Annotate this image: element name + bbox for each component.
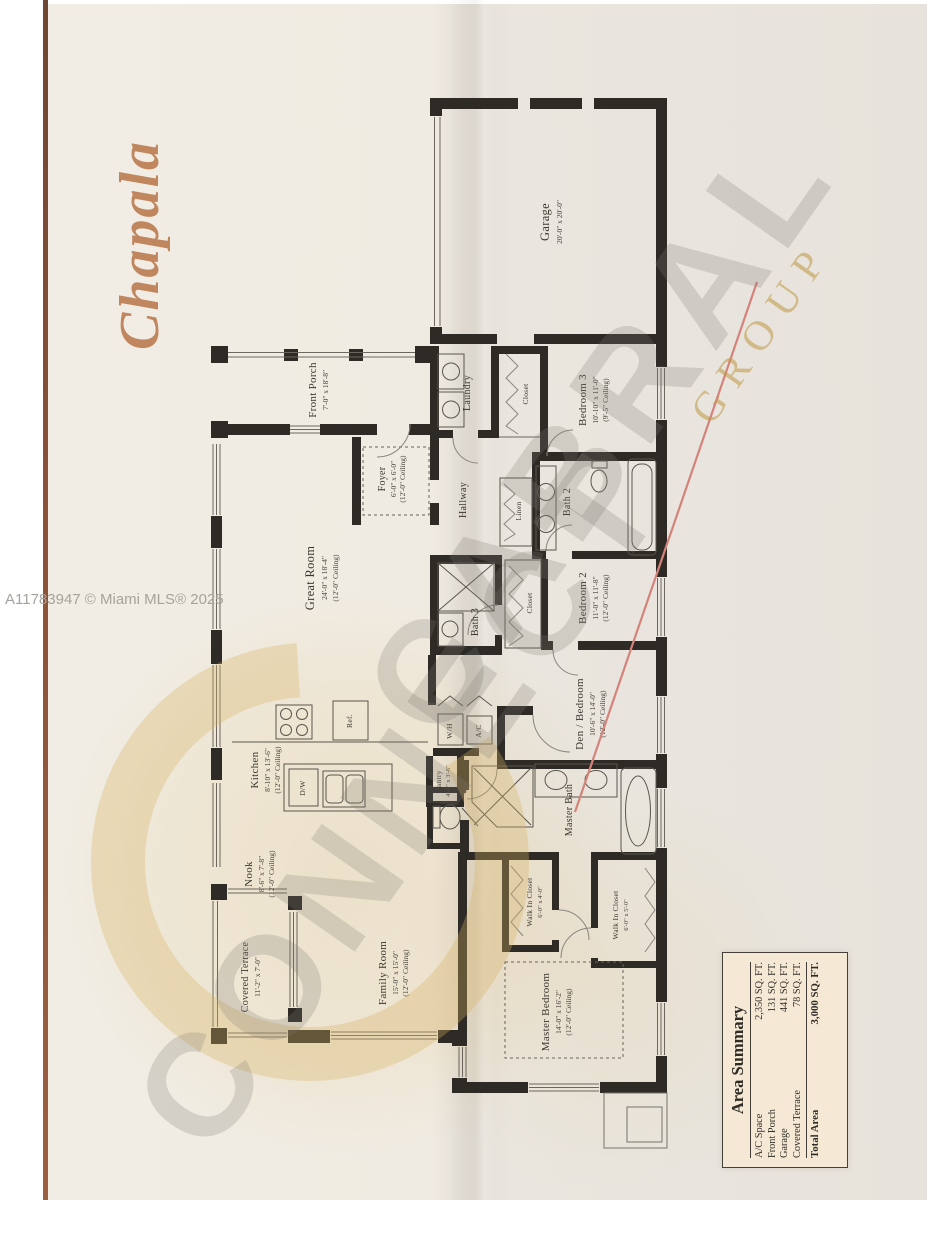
room-dims: 11'-0" x 11'-8" bbox=[591, 576, 600, 619]
room-label-garage: Garage 20'-0" x 20'-0" bbox=[538, 200, 564, 244]
room-name: Nook bbox=[243, 861, 255, 887]
room-name: Bedroom 2 bbox=[577, 572, 589, 624]
room-name: Covered Terrace bbox=[240, 941, 251, 1012]
area-summary-label: Garage bbox=[779, 1128, 792, 1158]
room-name: Family Room bbox=[377, 941, 389, 1005]
fixture-label-dishwasher: D/W bbox=[298, 780, 307, 796]
room-dims: 6'-0" x 5'-0" bbox=[623, 899, 630, 931]
room-ceiling: (12'-0" Ceiling) bbox=[267, 850, 276, 898]
area-summary-value: 441 SQ. FT. bbox=[779, 962, 792, 1012]
room-name: Laundry bbox=[462, 375, 473, 411]
room-label-laundry: Laundry bbox=[462, 375, 473, 411]
room-ceiling: (12'-0" Ceiling) bbox=[564, 988, 573, 1036]
room-dims: 4'-0" x 3'-6" bbox=[445, 765, 452, 797]
room-dims: 8'-10" x 13'-6" bbox=[263, 748, 272, 792]
room-label-walk-in-closet-1: Walk In Closet 6'-0" x 4'-0" bbox=[525, 877, 544, 927]
room-label-hallway: Hallway bbox=[458, 482, 469, 518]
area-summary-row: A/C Space 2,350 SQ. FT. bbox=[754, 962, 767, 1158]
room-label-great-room: Great Room 24'-0" x 18'-4" (12'-0" Ceili… bbox=[303, 546, 340, 610]
room-label-nook: Nook 8'-6" x 7'-8" (12'-0" Ceiling) bbox=[243, 850, 276, 898]
room-name: Master Bath bbox=[564, 784, 575, 836]
room-label-bath-2: Bath 2 bbox=[562, 488, 573, 516]
scanned-floorplan-page: { "plan": { "model_name": "Chapala" }, "… bbox=[0, 0, 927, 1200]
svg-text:D/W: D/W bbox=[298, 780, 307, 796]
room-ceiling: (12'-0" Ceiling) bbox=[401, 949, 410, 997]
room-ceiling: (12'-0" Ceiling) bbox=[601, 574, 610, 622]
room-name: Bath 3 bbox=[470, 608, 481, 636]
room-name: Bath 2 bbox=[562, 488, 573, 516]
area-summary-title: Area Summary bbox=[728, 962, 751, 1158]
room-label-linen: Linen bbox=[514, 502, 523, 521]
room-name: Kitchen bbox=[249, 751, 261, 788]
room-dims: 11'-2" x 7'-0" bbox=[253, 957, 262, 997]
room-label-front-porch: Front Porch 7'-0" x 18'-8" bbox=[307, 362, 330, 418]
room-name: Hallway bbox=[458, 482, 469, 518]
room-label-walk-in-closet-2: Walk In Closet 6'-0" x 5'-0" bbox=[611, 890, 630, 940]
room-label-closet-3: Closet bbox=[521, 383, 530, 405]
room-name: Master Bedroom bbox=[540, 973, 552, 1052]
fixture-label-ac-unit: A/C bbox=[474, 724, 483, 737]
room-name: Linen bbox=[514, 502, 523, 521]
room-dims: 6'-0" x 6'-0" bbox=[389, 461, 398, 497]
room-dims: 8'-6" x 7'-8" bbox=[257, 856, 266, 892]
room-dims: 6'-0" x 4'-0" bbox=[537, 886, 544, 918]
svg-text:A/C: A/C bbox=[474, 724, 483, 737]
room-label-covered-terrace: Covered Terrace 11'-2" x 7'-0" bbox=[240, 941, 262, 1012]
area-summary-value: 2,350 SQ. FT. bbox=[754, 962, 767, 1020]
room-dims: 10'-6" x 14'-0" bbox=[588, 692, 597, 736]
room-ceiling: (12'-0" Ceiling) bbox=[398, 455, 407, 503]
area-summary-total-label: Total Area bbox=[809, 1110, 821, 1158]
room-label-closet-2: Closet bbox=[525, 592, 534, 614]
room-label-family-room: Family Room 15'-0" x 15'-0" (12'-0" Ceil… bbox=[377, 941, 410, 1005]
room-label-foyer: Foyer 6'-0" x 6'-0" (12'-0" Ceiling) bbox=[377, 455, 407, 503]
room-label-bedroom-2: Bedroom 2 11'-0" x 11'-8" (12'-0" Ceilin… bbox=[577, 572, 610, 624]
room-dims: 15'-0" x 15'-0" bbox=[391, 951, 400, 995]
room-name: Pantry bbox=[434, 770, 443, 791]
area-summary-row: Front Porch 131 SQ. FT. bbox=[767, 962, 780, 1158]
room-label-kitchen: Kitchen 8'-10" x 13'-6" (12'-0" Ceiling) bbox=[249, 746, 282, 794]
room-label-master-bath: Master Bath bbox=[564, 784, 575, 836]
area-summary-total-row: Total Area 3,000 SQ. FT. bbox=[806, 962, 821, 1158]
area-summary-total-value: 3,000 SQ. FT. bbox=[809, 962, 821, 1025]
area-summary-label: Front Porch bbox=[767, 1109, 780, 1158]
area-summary-table: Area Summary A/C Space 2,350 SQ. FT. Fro… bbox=[722, 952, 848, 1168]
fixture-label-water-heater: W/H bbox=[445, 723, 454, 739]
room-name: Foyer bbox=[377, 466, 388, 491]
svg-text:Ref.: Ref. bbox=[345, 714, 354, 728]
room-name: Great Room bbox=[303, 546, 317, 610]
room-label-bath-3: Bath 3 bbox=[470, 608, 481, 636]
area-summary-value: 131 SQ. FT. bbox=[767, 962, 780, 1012]
area-summary-row: Covered Terrace 78 SQ. FT. bbox=[792, 962, 805, 1158]
room-label-den-bedroom: Den / Bedroom 10'-6" x 14'-0" (12'-0" Ce… bbox=[574, 678, 607, 750]
room-name: Front Porch bbox=[307, 362, 319, 418]
room-name: Walk In Closet bbox=[611, 890, 620, 940]
room-name: Closet bbox=[525, 592, 534, 614]
svg-text:W/H: W/H bbox=[445, 723, 454, 739]
fixture-label-refrigerator: Ref. bbox=[345, 714, 354, 728]
room-label-bedroom-3: Bedroom 3 10'-10" x 11'-0" (9'-5" Ceilin… bbox=[577, 374, 610, 426]
room-ceiling: (12'-0" Ceiling) bbox=[273, 746, 282, 794]
room-dims: 7'-0" x 18'-8" bbox=[321, 370, 330, 410]
area-summary-label: Covered Terrace bbox=[792, 1090, 805, 1158]
mls-credit-text: A11783947 © Miami MLS® 2025 bbox=[5, 591, 224, 608]
area-summary-row: Garage 441 SQ. FT. bbox=[779, 962, 792, 1158]
room-dims: 10'-10" x 11'-0" bbox=[591, 376, 600, 423]
room-name: Den / Bedroom bbox=[574, 678, 586, 750]
room-dims: 20'-0" x 20'-0" bbox=[555, 200, 564, 244]
room-name: Closet bbox=[521, 383, 530, 405]
room-name: Bedroom 3 bbox=[577, 374, 589, 426]
area-summary-label: A/C Space bbox=[754, 1114, 767, 1158]
room-name: Garage bbox=[538, 203, 552, 241]
room-ceiling: (12'-0" Ceiling) bbox=[331, 554, 340, 602]
room-label-master-bedroom: Master Bedroom 14'-0" x 16'-2" (12'-0" C… bbox=[540, 973, 573, 1052]
area-summary-value: 78 SQ. FT. bbox=[792, 962, 805, 1007]
closet-rods bbox=[500, 354, 655, 952]
room-dims: 24'-0" x 18'-4" bbox=[320, 556, 329, 600]
room-dims: 14'-0" x 16'-2" bbox=[554, 990, 563, 1034]
room-ceiling: (9'-5" Ceiling) bbox=[601, 378, 610, 422]
room-name: Walk In Closet bbox=[525, 877, 534, 927]
